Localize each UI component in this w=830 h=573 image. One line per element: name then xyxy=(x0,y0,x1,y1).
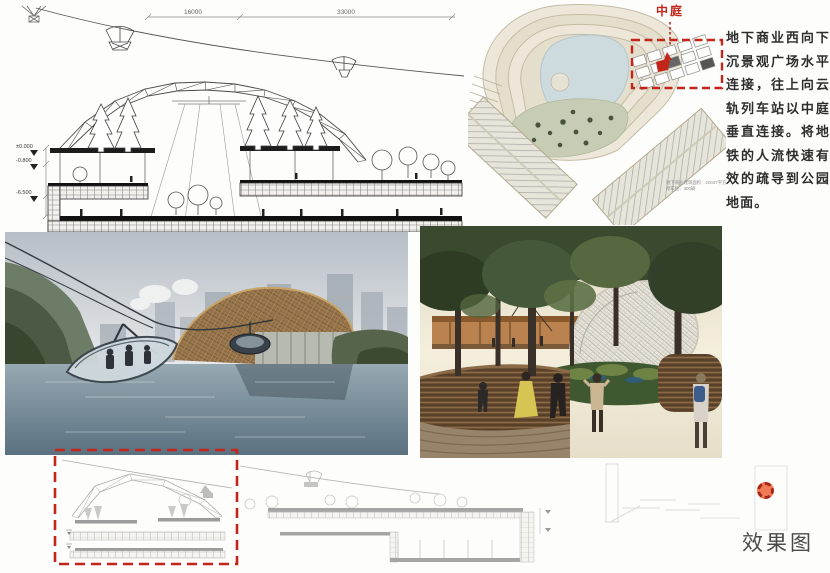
slab-edge xyxy=(48,183,148,186)
rattan-planter-right xyxy=(658,354,722,412)
stay-cables xyxy=(150,104,262,220)
section-strip-bottom xyxy=(0,448,830,573)
plaza-trees xyxy=(168,185,222,215)
section-highlight-box xyxy=(55,450,237,564)
lake-island xyxy=(551,73,569,91)
presentation-board: 16000 33000 xyxy=(0,0,830,573)
foundation-band xyxy=(48,221,462,232)
mini-section-boxed xyxy=(62,460,232,558)
render-park-boardwalk xyxy=(420,226,722,458)
plan-caption-line1: 地下商业建筑面积：20047平方米 xyxy=(666,179,726,186)
gondola-drawing xyxy=(106,26,134,50)
slab-edge xyxy=(240,180,462,183)
corner-gondola-sketch xyxy=(22,6,46,22)
monorail-track xyxy=(172,96,246,104)
render-cablecar-lake xyxy=(5,232,408,455)
basement-floor xyxy=(60,216,462,221)
section-drawing-main: 16000 33000 xyxy=(0,0,466,232)
site-plan: 中庭 地下商业建筑面积：20047平方米 停车位：300辆 xyxy=(468,0,726,225)
level-markers: ±0.000 -0.800 -6.500 xyxy=(16,144,49,219)
deck-posts xyxy=(60,151,333,183)
description-paragraph: 地下商业西向下沉景观广场水平连接，往上向云轨列车站以中庭垂直连接。将地铁的人流快… xyxy=(726,26,830,214)
dim-label-33000: 33000 xyxy=(337,9,355,16)
level-1: -0.800 xyxy=(16,158,32,164)
ground-band-left xyxy=(48,186,148,199)
red-dashed-circle-marker xyxy=(757,482,774,499)
rendering-caption: 效果图 xyxy=(742,527,814,557)
tree-canopies xyxy=(420,226,722,318)
gondola-drawing xyxy=(332,56,356,77)
level-2: -6.500 xyxy=(16,190,32,196)
mini-section-right xyxy=(179,466,551,562)
plan-caption-line2: 停车位：300辆 xyxy=(666,185,696,192)
cableway-line xyxy=(36,8,464,76)
dim-label-16000: 16000 xyxy=(184,9,202,16)
level-0: ±0.000 xyxy=(16,144,33,150)
ground-band-right xyxy=(240,183,462,196)
atrium-label: 中庭 xyxy=(656,3,684,18)
